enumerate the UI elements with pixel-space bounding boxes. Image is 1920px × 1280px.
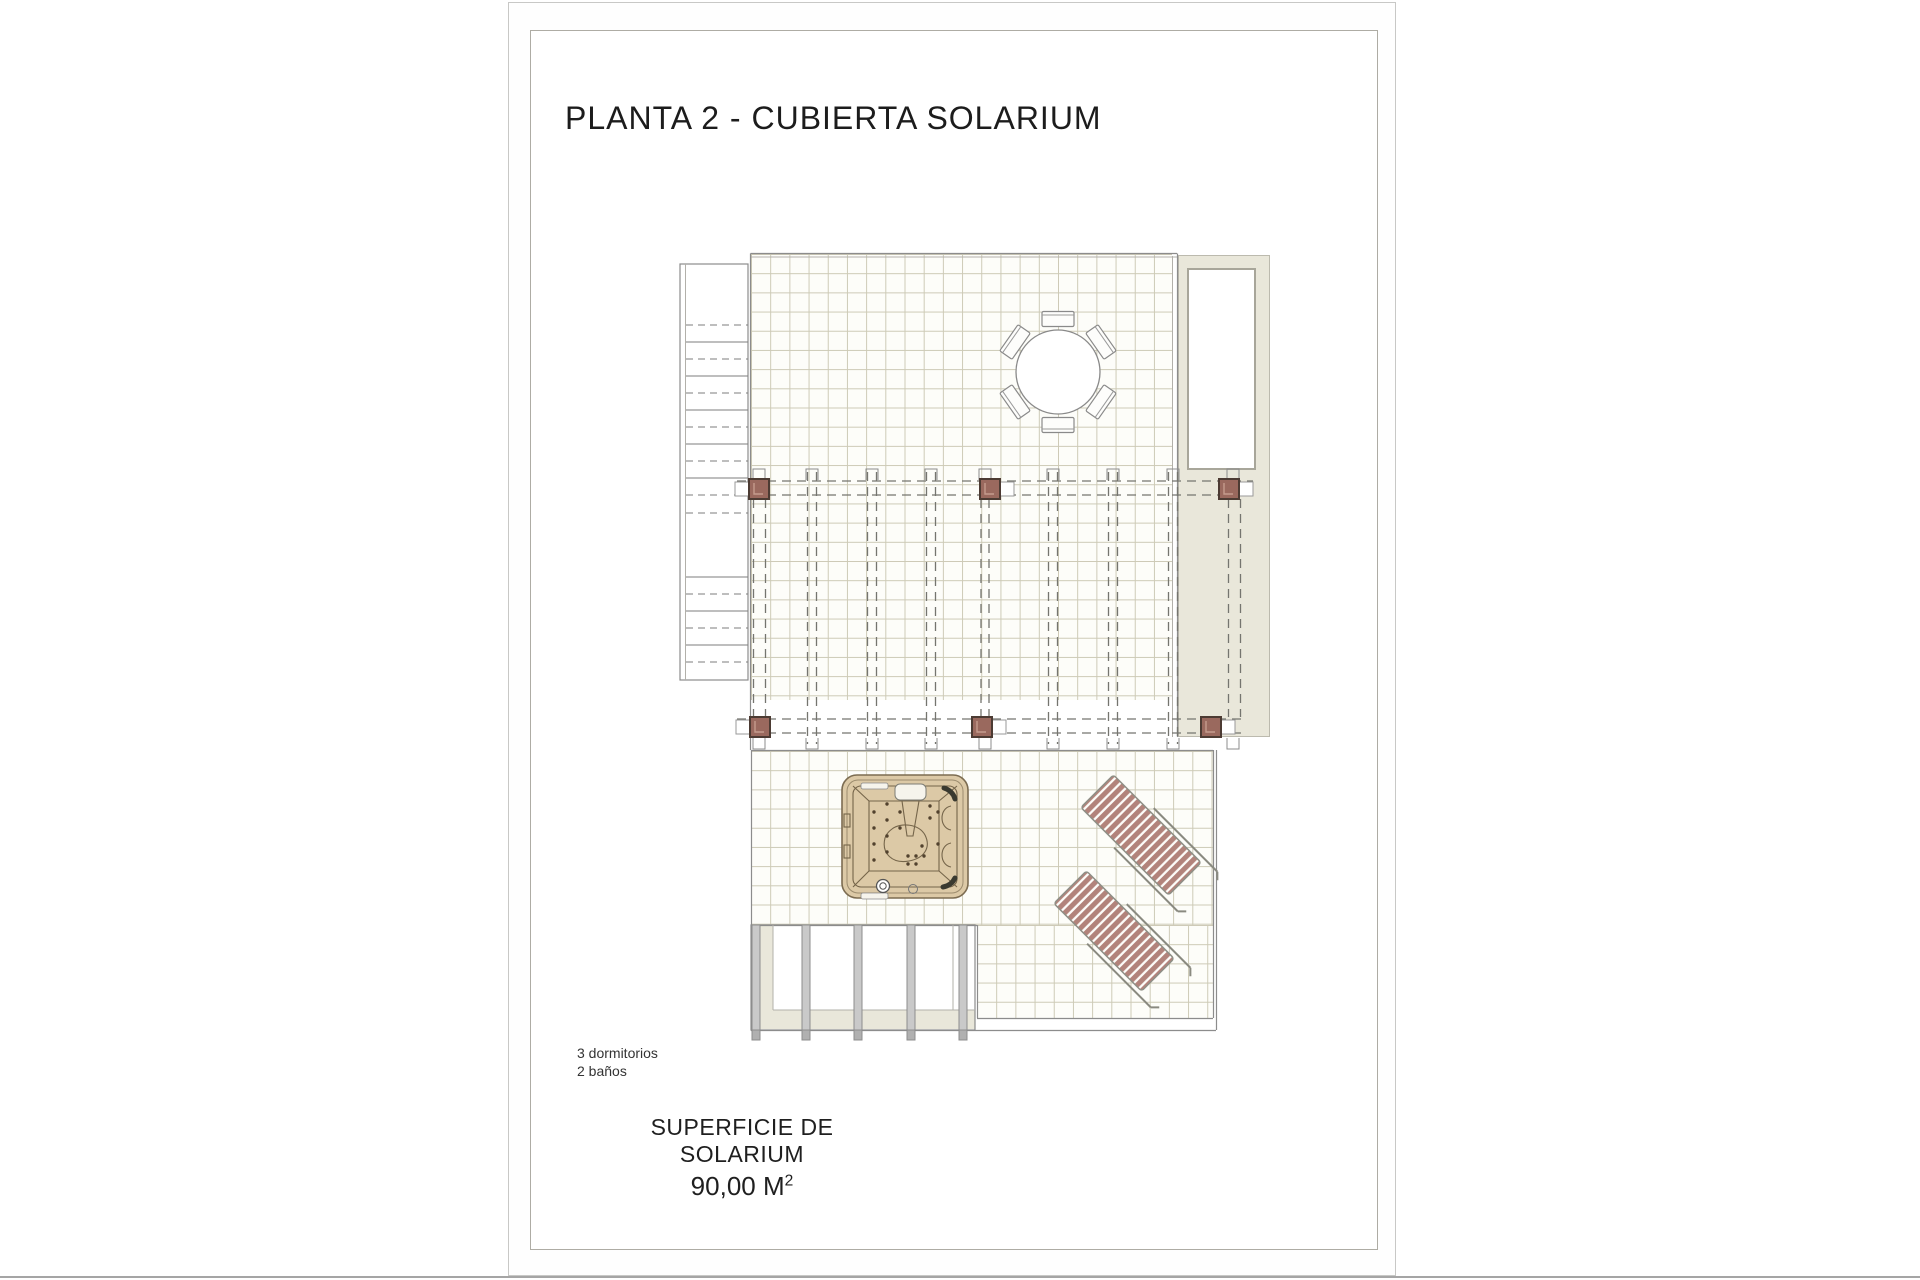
- plan-title: PLANTA 2 - CUBIERTA SOLARIUM: [565, 100, 1102, 137]
- surface-label: SUPERFICIE DE SOLARIUM: [596, 1114, 888, 1168]
- rooflight-window: [1187, 268, 1256, 470]
- note-bathrooms: 2 baños: [577, 1062, 658, 1080]
- upper-terrace-tiles: [751, 254, 1172, 700]
- porch-parapet-bottom: [753, 1010, 975, 1029]
- note-bedrooms: 3 dormitorios: [577, 1044, 658, 1062]
- lower-terrace-tiles-right-band: [977, 925, 1213, 1018]
- surface-value: 90,00 M2: [596, 1171, 888, 1202]
- screenshot-canvas: PLANTA 2 - CUBIERTA SOLARIUM 3 dormitori…: [0, 0, 1920, 1280]
- surface-callout: SUPERFICIE DE SOLARIUM 90,00 M2: [596, 1114, 888, 1202]
- screen-bottom-edge: [0, 1276, 1920, 1278]
- plan-notes: 3 dormitorios 2 baños: [577, 1044, 658, 1080]
- lower-terrace-tiles-upper-band: [751, 751, 1213, 925]
